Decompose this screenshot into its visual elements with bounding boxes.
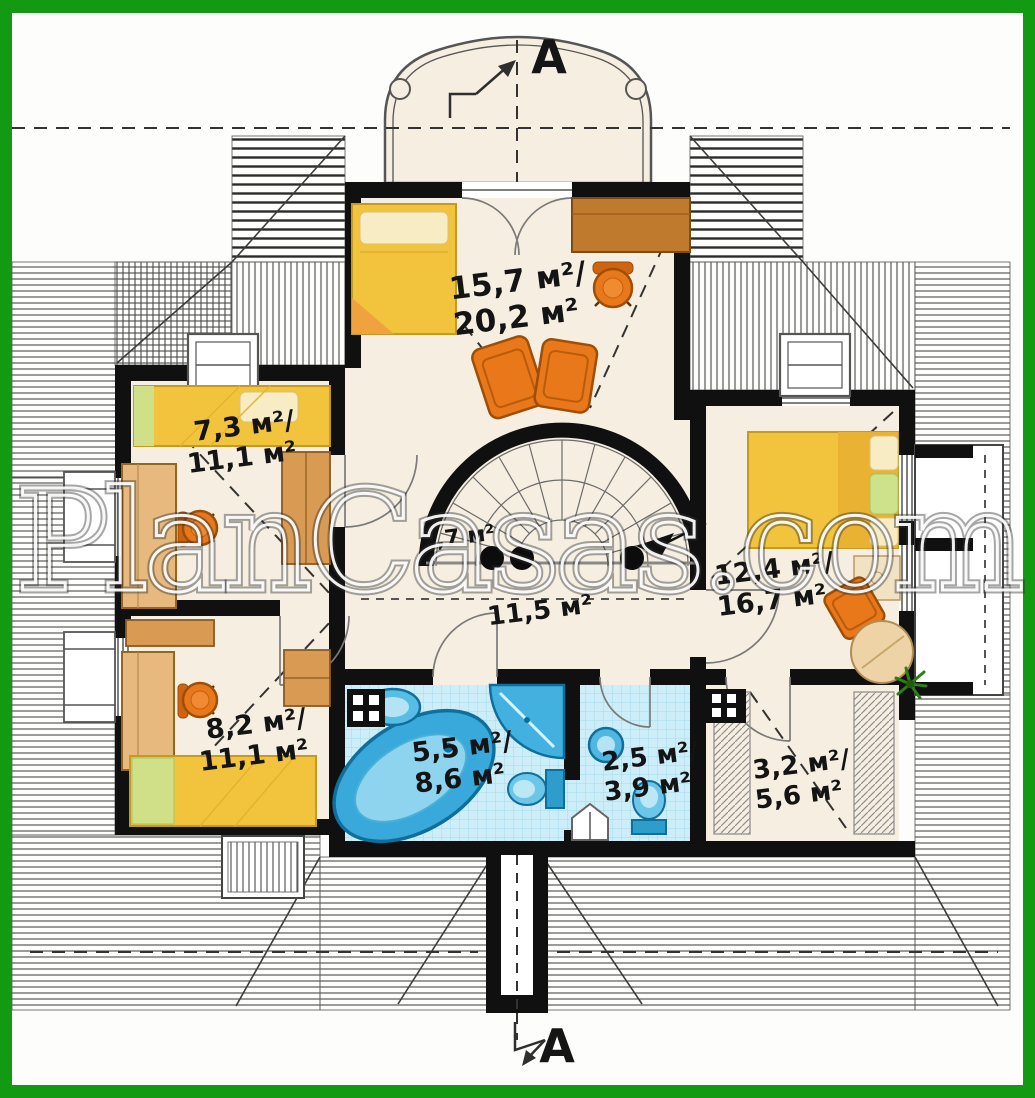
- office-chair: [178, 511, 217, 546]
- room-area-label-bathroom: 5,5 м²/ 8,6 м²: [410, 726, 518, 800]
- section-marker-top: A: [531, 30, 567, 84]
- room-area-label-left-top-room: 7,3 м²/ 11,1 м²: [192, 405, 300, 479]
- office-chair: [593, 262, 633, 307]
- stair-post: [510, 546, 534, 570]
- desk: [122, 464, 176, 608]
- desk: [122, 652, 174, 770]
- shelf: [126, 620, 214, 646]
- floor-plan-image: 15,7 м²/ 20,2 м² 7,3 м²/ 11,1 м² 12,4 м²…: [0, 0, 1035, 1098]
- office-chair: [178, 683, 217, 718]
- floor-plan-drawing: [0, 0, 1035, 1098]
- room-area-label-wardrobe: 3,2 м²/ 5,6 м²: [751, 744, 855, 816]
- chimney: [486, 841, 548, 1013]
- room-area-label-wc: 2,5 м²/ 3,9 м²: [600, 736, 704, 808]
- room-area-label-left-bottom-room: 8,2 м²/ 11,1 м²: [204, 703, 312, 777]
- armchair: [533, 338, 598, 414]
- desk: [572, 198, 690, 252]
- side-bay: [915, 445, 1003, 695]
- balcony-column: [626, 79, 646, 99]
- balcony-column: [390, 79, 410, 99]
- window-sill: [64, 632, 115, 722]
- window-sill: [64, 472, 115, 562]
- stair-post: [480, 546, 504, 570]
- section-marker-bottom: A: [539, 1019, 575, 1073]
- stair-post: [620, 546, 644, 570]
